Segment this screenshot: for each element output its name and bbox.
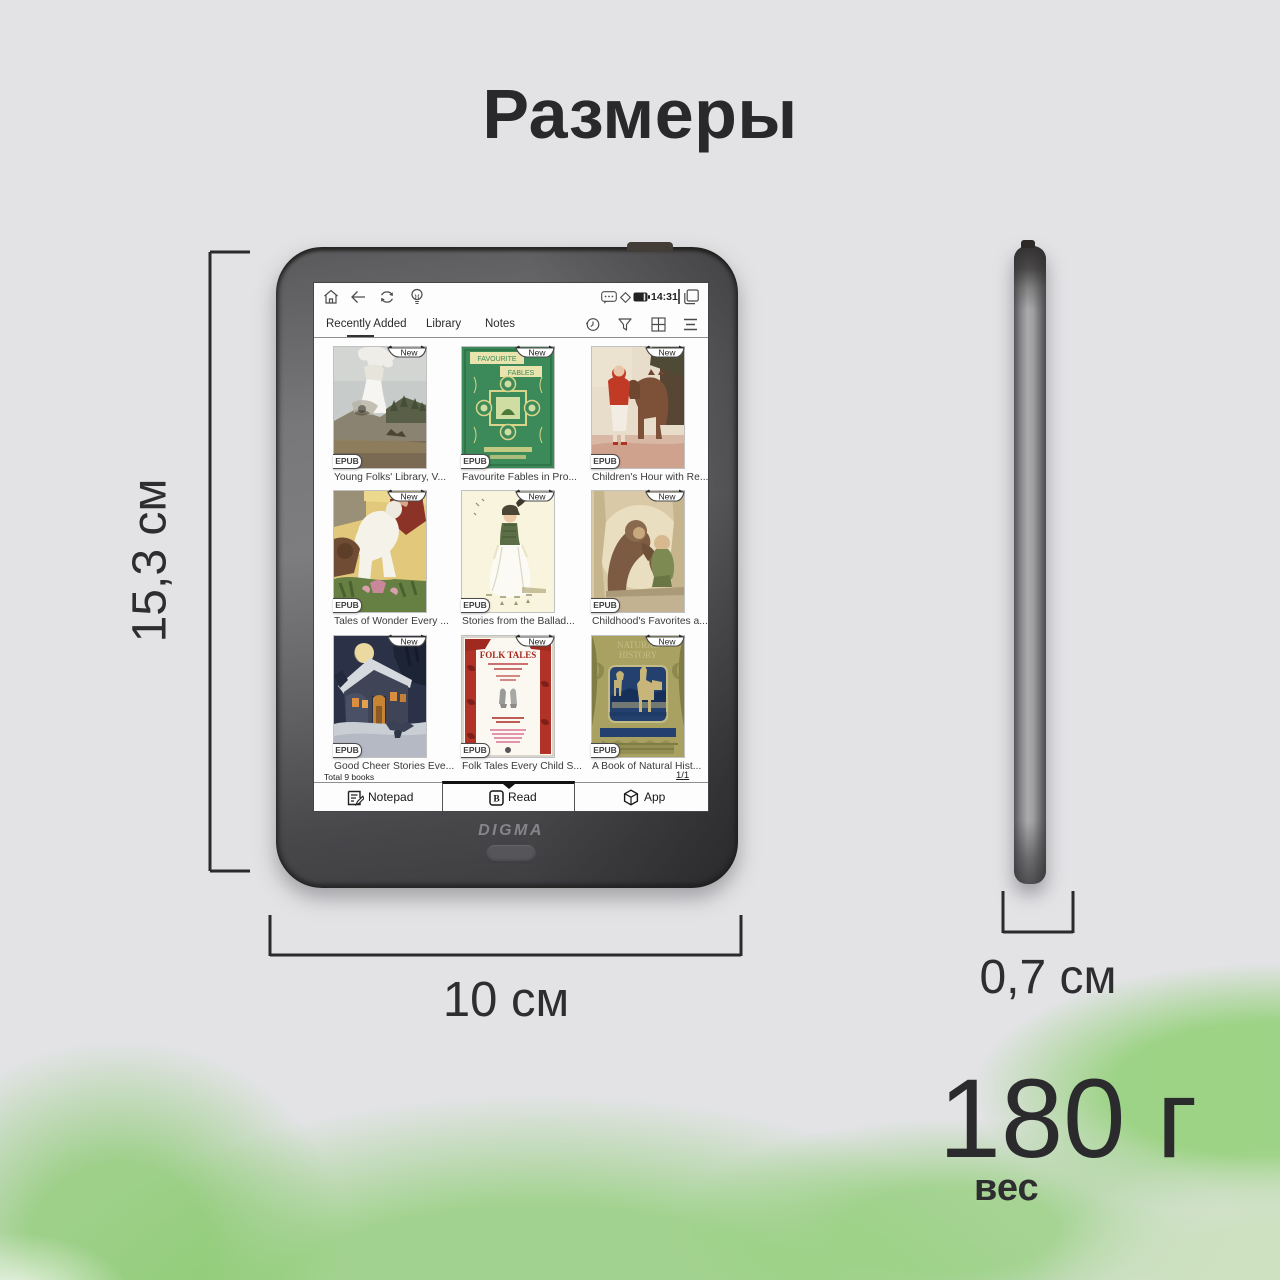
svg-text:New: New [400, 348, 418, 358]
svg-text:New: New [658, 348, 676, 358]
svg-text:FOLK TALES: FOLK TALES [480, 650, 536, 660]
svg-text:B: B [493, 795, 500, 805]
svg-text:New: New [400, 492, 418, 502]
svg-text:FABLES: FABLES [508, 370, 535, 377]
svg-text:New: New [400, 637, 418, 647]
svg-text:New: New [528, 637, 546, 647]
svg-text:New: New [658, 637, 676, 647]
svg-text:HISTORY: HISTORY [619, 650, 658, 660]
svg-text:FAVOURITE: FAVOURITE [477, 356, 516, 363]
svg-text:New: New [528, 492, 546, 502]
svg-text:New: New [528, 348, 546, 358]
svg-text:New: New [658, 492, 676, 502]
